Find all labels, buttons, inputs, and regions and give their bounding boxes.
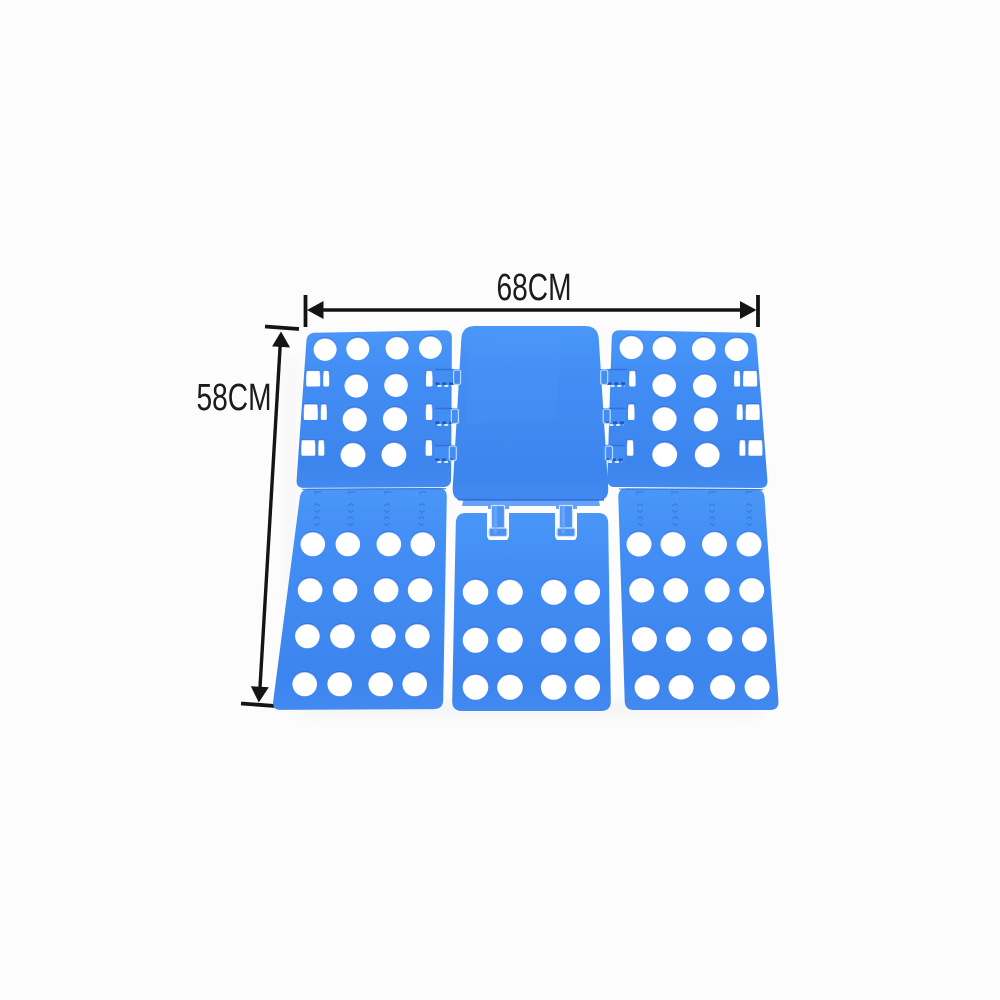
svg-text:68CM: 68CM xyxy=(497,267,572,309)
svg-text:58CM: 58CM xyxy=(197,377,272,419)
